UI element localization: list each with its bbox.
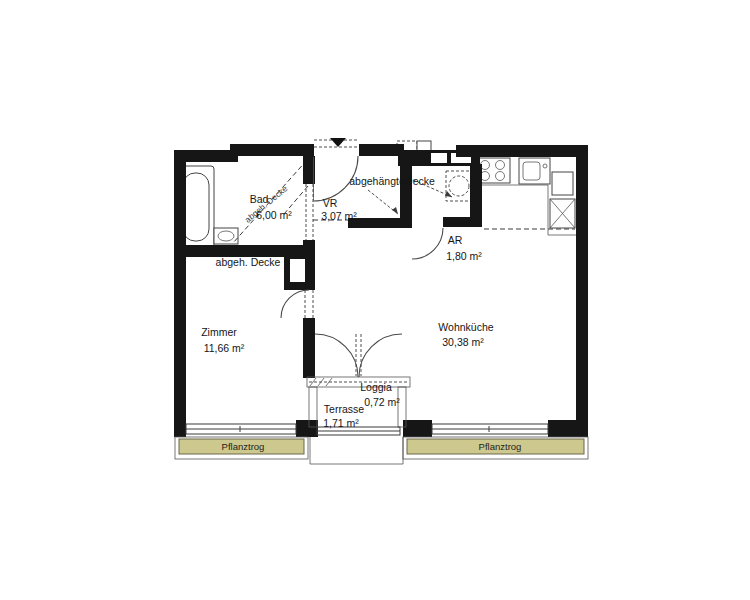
room-area-ar: 1,80 m² [446, 250, 482, 262]
floor-plan-canvas: abgeh. Decke Bad 6,00 m² VR 3,07 m² abge… [0, 0, 750, 600]
wall-zimmer-right [303, 318, 315, 378]
zimmer-door-swing [281, 290, 309, 318]
shaft-opening [431, 153, 447, 163]
room-area-wohnkueche: 30,38 m² [442, 336, 484, 348]
wall-ar-bottom [443, 217, 482, 227]
shaft-inner [290, 259, 305, 282]
arrowhead [392, 207, 398, 214]
french-door-left-swing [315, 334, 358, 377]
threshold-hatch [310, 378, 332, 386]
wall-left [174, 150, 186, 437]
bathtub-basin [183, 173, 209, 241]
ar-door-swing [412, 228, 443, 259]
wall-bad-top [174, 150, 238, 162]
wall-kitchen-top [456, 145, 588, 157]
wall-top-right-of-entry [359, 144, 404, 156]
room-area-loggia: 0,72 m² [364, 396, 400, 408]
planter-label-right: Pflanztrog [479, 441, 522, 452]
wall-right [576, 145, 588, 437]
room-area-terrasse: 1,71 m² [323, 417, 359, 429]
room-label-bad: Bad [250, 193, 269, 205]
wall-stub-wohn-right [548, 420, 588, 437]
wall-stub-wohn-left [403, 420, 432, 437]
planter-label-left: Pflanztrog [222, 441, 265, 452]
wall-ar-left [400, 156, 412, 227]
wall-stub-zimmer-window [296, 420, 318, 437]
washing-machine-drum [449, 176, 469, 196]
room-label-zimmer: Zimmer [201, 326, 237, 338]
wall-top [230, 144, 314, 156]
room-label-ar: AR [448, 234, 463, 246]
room-label-wohnkueche: Wohnküche [438, 321, 493, 333]
room-label-vr: VR [323, 197, 338, 209]
appliance [552, 172, 573, 195]
room-label-terrasse: Terrasse [324, 403, 364, 415]
bathroom-fixtures [178, 166, 238, 248]
entrance-arrow-icon [330, 138, 346, 147]
french-door-right-swing [359, 334, 402, 377]
room-area-zimmer: 11,66 m² [204, 342, 245, 354]
windows [186, 424, 548, 434]
room-area-vr: 3,07 m² [321, 210, 357, 222]
room-area-bad: 6,00 m² [256, 209, 292, 221]
kitchen-fixtures [477, 158, 576, 235]
terrace-apron [310, 437, 403, 464]
ceiling-label-part2: Decke [405, 175, 435, 187]
walls [174, 144, 588, 437]
floor-plan-page: abgeh. Decke Bad 6,00 m² VR 3,07 m² abge… [0, 0, 750, 600]
wall-vr-bottom [348, 218, 412, 228]
ceiling-label-abbr: abgeh. Decke [216, 256, 281, 268]
room-label-loggia: Loggia [360, 381, 392, 393]
ceiling-label-part1: abgehängte [349, 175, 405, 187]
